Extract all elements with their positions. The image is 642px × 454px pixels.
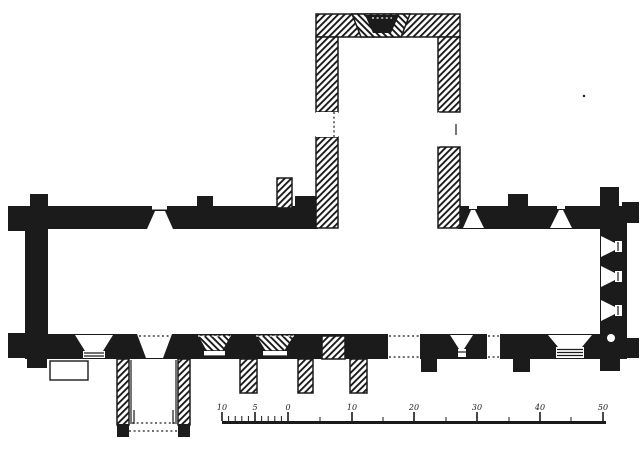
scale-label: 10 bbox=[217, 403, 227, 412]
scale-minor-tick bbox=[274, 416, 275, 421]
transept-west-window bbox=[316, 112, 338, 137]
transept-west-wall-upper bbox=[316, 37, 338, 112]
south-buttress-hatched-2 bbox=[298, 359, 313, 393]
nave-transept-junction-mass bbox=[295, 196, 318, 229]
wall-pier-hatched bbox=[322, 336, 345, 359]
nave-south-window-2-gap bbox=[263, 351, 287, 356]
scale-minor-tick bbox=[241, 416, 242, 421]
scale-minor-tick bbox=[248, 416, 249, 421]
se-buttress-south bbox=[600, 357, 620, 371]
floor-plan-canvas: 10501020304050 bbox=[0, 0, 642, 454]
chancel-south-window-slit bbox=[458, 349, 466, 357]
plinth-outline bbox=[50, 361, 88, 380]
scale-mid-tick bbox=[571, 417, 572, 421]
scale-label: 50 bbox=[598, 403, 608, 412]
chancel-north-buttress bbox=[508, 194, 528, 208]
scale-label-tick bbox=[351, 412, 353, 421]
scale-label: 20 bbox=[408, 403, 419, 412]
chancel-north-window-2-slit bbox=[557, 206, 565, 209]
scale-baseline bbox=[222, 421, 606, 424]
scale-minor-tick bbox=[281, 416, 282, 421]
south-buttress-hatched-3 bbox=[350, 359, 367, 393]
nave-north-window-slit bbox=[152, 206, 167, 210]
nave-southwest-window-sill bbox=[83, 351, 105, 358]
chancel-north-wall bbox=[458, 206, 627, 229]
porch-west-foot bbox=[117, 424, 129, 437]
porch-east-foot bbox=[178, 424, 190, 437]
scale-label-tick bbox=[476, 412, 478, 421]
church-floor-plan-figure: 10501020304050 bbox=[0, 0, 642, 454]
scale-minor-tick bbox=[261, 416, 262, 421]
nave-north-window-lintel bbox=[152, 210, 167, 212]
scale-minor-tick bbox=[235, 416, 236, 421]
scale-label: 0 bbox=[285, 403, 290, 412]
ne-buttress-north bbox=[600, 187, 619, 208]
scale-label-tick bbox=[413, 412, 415, 421]
south-doorway bbox=[388, 334, 420, 359]
paper-speck bbox=[583, 95, 585, 97]
scale-label-tick bbox=[287, 412, 289, 421]
scale-label: 30 bbox=[472, 403, 482, 412]
nave-south-window-1-gap bbox=[204, 351, 225, 356]
scale-label: 5 bbox=[252, 403, 257, 412]
scale-mid-tick bbox=[509, 417, 510, 421]
transept-east-wall-lower bbox=[438, 147, 460, 228]
scale-mid-tick bbox=[383, 417, 384, 421]
south-buttress-hatched-1 bbox=[240, 359, 257, 393]
scale-mid-tick bbox=[446, 417, 447, 421]
scale-minor-tick bbox=[268, 416, 269, 421]
priest-doorway bbox=[487, 334, 500, 359]
scale-label-tick bbox=[254, 412, 256, 421]
porch-east-wall bbox=[178, 359, 190, 425]
scale-minor-tick bbox=[228, 416, 229, 421]
transept-east-wall-upper bbox=[438, 37, 460, 112]
scale-label-tick bbox=[539, 412, 541, 421]
scale-bar: 10501020304050 bbox=[217, 403, 608, 424]
plan-shapes-layer bbox=[8, 14, 639, 437]
nave-north-wall bbox=[25, 206, 318, 229]
scale-label: 10 bbox=[347, 403, 357, 412]
chancel-south-buttress-1 bbox=[421, 357, 437, 372]
sw-buttress-west bbox=[8, 333, 27, 358]
chancel-south-buttress-2 bbox=[513, 357, 530, 372]
scale-label: 40 bbox=[534, 403, 545, 412]
nw-buttress-west bbox=[8, 206, 27, 231]
porch-west-wall bbox=[117, 359, 129, 425]
chancel-north-window-1-slit bbox=[469, 206, 477, 209]
scale-label-tick bbox=[602, 412, 604, 421]
nw-buttress-north bbox=[30, 194, 48, 208]
scale-label-tick bbox=[221, 412, 223, 421]
piscina-circle bbox=[607, 334, 615, 342]
scale-mid-tick bbox=[320, 417, 321, 421]
stair-pier bbox=[277, 178, 292, 208]
transept-west-wall-lower bbox=[316, 137, 338, 228]
